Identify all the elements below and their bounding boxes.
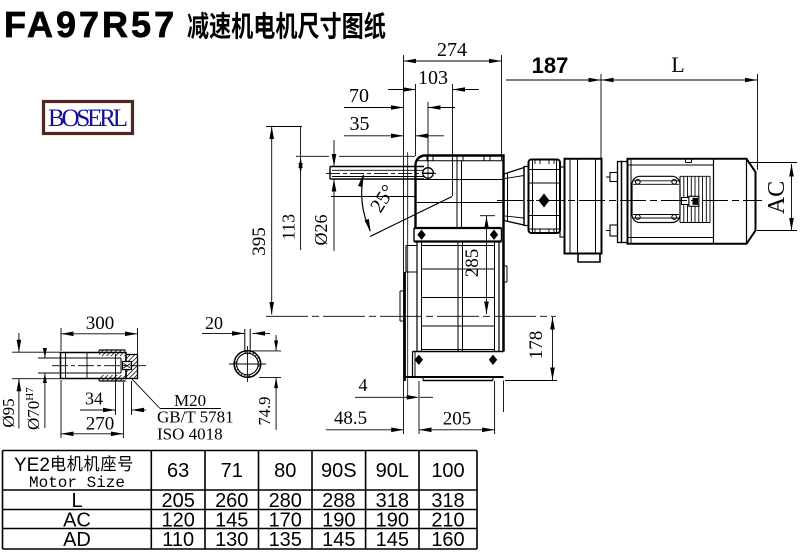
svg-text:274: 274 bbox=[437, 39, 467, 61]
svg-text:34: 34 bbox=[85, 389, 103, 409]
svg-text:35: 35 bbox=[350, 113, 370, 135]
svg-text:4: 4 bbox=[359, 375, 368, 395]
svg-text:48.5: 48.5 bbox=[334, 408, 367, 429]
svg-text:285: 285 bbox=[462, 249, 483, 278]
svg-text:70: 70 bbox=[349, 85, 369, 107]
svg-text:BOSERL: BOSERL bbox=[48, 105, 128, 132]
svg-text:130: 130 bbox=[215, 529, 248, 551]
svg-text:80: 80 bbox=[274, 460, 296, 482]
svg-text:160: 160 bbox=[431, 529, 464, 551]
svg-text:FA97R57: FA97R57 bbox=[4, 4, 177, 45]
svg-text:145: 145 bbox=[322, 529, 355, 551]
svg-text:AC: AC bbox=[764, 181, 790, 214]
svg-text:63: 63 bbox=[167, 460, 189, 482]
svg-text:20: 20 bbox=[205, 313, 223, 333]
svg-text:Ø95: Ø95 bbox=[0, 398, 18, 427]
svg-text:113: 113 bbox=[279, 214, 299, 240]
svg-text:90L: 90L bbox=[376, 460, 409, 482]
svg-text:YE2: YE2 bbox=[14, 455, 50, 476]
svg-text:L: L bbox=[671, 52, 684, 77]
svg-text:74.9: 74.9 bbox=[255, 397, 274, 426]
svg-text:178: 178 bbox=[526, 331, 547, 360]
svg-text:90S: 90S bbox=[321, 460, 357, 482]
svg-text:103: 103 bbox=[418, 67, 448, 89]
svg-text:145: 145 bbox=[376, 529, 409, 551]
svg-text:AD: AD bbox=[63, 529, 91, 551]
svg-text:135: 135 bbox=[269, 529, 302, 551]
svg-text:395: 395 bbox=[249, 227, 270, 256]
svg-text:100: 100 bbox=[431, 460, 464, 482]
svg-text:270: 270 bbox=[86, 414, 115, 435]
svg-text:300: 300 bbox=[86, 313, 115, 334]
svg-text:187: 187 bbox=[532, 53, 569, 78]
svg-text:205: 205 bbox=[443, 409, 472, 430]
svg-text:71: 71 bbox=[221, 460, 243, 482]
svg-text:ISO 4018: ISO 4018 bbox=[157, 425, 223, 444]
svg-text:110: 110 bbox=[162, 529, 194, 551]
svg-text:Ø26: Ø26 bbox=[311, 215, 331, 246]
